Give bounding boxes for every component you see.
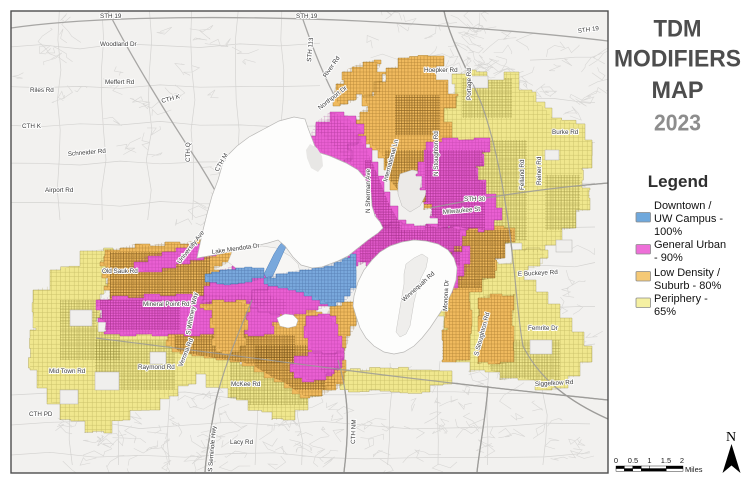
svg-text:CTH K: CTH K xyxy=(22,123,42,130)
svg-text:Lacy Rd: Lacy Rd xyxy=(230,439,254,446)
svg-text:CTH Q: CTH Q xyxy=(185,142,192,162)
svg-text:CTH NM: CTH NM xyxy=(350,419,358,444)
svg-text:1: 1 xyxy=(647,456,651,465)
svg-text:Airport Rd: Airport Rd xyxy=(45,187,74,194)
svg-text:McKee Rd: McKee Rd xyxy=(231,381,261,388)
svg-text:0.5: 0.5 xyxy=(628,456,638,465)
svg-text:Femrite Dr: Femrite Dr xyxy=(528,325,558,332)
svg-text:N Stoughton Rd: N Stoughton Rd xyxy=(433,131,440,176)
svg-text:Suburb - 80%: Suburb - 80% xyxy=(654,280,721,292)
svg-text:Old Sauk Rd: Old Sauk Rd xyxy=(102,268,138,275)
svg-text:1.5: 1.5 xyxy=(661,456,671,465)
svg-text:MAP: MAP xyxy=(652,77,704,104)
svg-text:Legend: Legend xyxy=(648,172,708,191)
svg-text:STH 30: STH 30 xyxy=(464,196,486,203)
svg-text:CTH PD: CTH PD xyxy=(29,411,53,418)
svg-text:Hoepker Rd: Hoepker Rd xyxy=(424,67,458,74)
svg-text:TDM: TDM xyxy=(654,16,702,43)
svg-text:Mid Town Rd: Mid Town Rd xyxy=(49,368,86,375)
svg-text:Miles: Miles xyxy=(685,465,703,474)
svg-text:Low Density /: Low Density / xyxy=(654,267,721,279)
svg-text:Woodland Dr: Woodland Dr xyxy=(100,41,137,48)
svg-text:STH 19: STH 19 xyxy=(296,13,318,20)
svg-text:100%: 100% xyxy=(654,226,682,238)
svg-text:2: 2 xyxy=(680,456,684,465)
svg-text:Riles Rd: Riles Rd xyxy=(30,87,54,94)
svg-text:0: 0 xyxy=(614,456,618,465)
svg-text:UW Campus -: UW Campus - xyxy=(654,213,723,225)
svg-text:STH 19: STH 19 xyxy=(100,13,122,20)
svg-text:Portage Rd: Portage Rd xyxy=(466,68,473,100)
svg-text:Meffert Rd: Meffert Rd xyxy=(105,79,135,86)
svg-text:N Sherman Ave: N Sherman Ave xyxy=(365,169,372,213)
svg-text:Raymond Rd: Raymond Rd xyxy=(138,364,175,371)
svg-text:- 90%: - 90% xyxy=(654,252,683,264)
svg-text:General Urban: General Urban xyxy=(654,239,726,251)
svg-text:Downtown /: Downtown / xyxy=(654,200,712,212)
svg-text:2023: 2023 xyxy=(654,110,701,136)
svg-text:65%: 65% xyxy=(654,306,676,318)
svg-text:Burke Rd: Burke Rd xyxy=(552,129,579,136)
svg-text:MODIFIERS: MODIFIERS xyxy=(614,46,741,73)
svg-text:Felland Rd: Felland Rd xyxy=(519,159,526,190)
svg-text:Reiner Rd: Reiner Rd xyxy=(536,156,543,185)
svg-text:Mineral Point Rd: Mineral Point Rd xyxy=(143,301,190,308)
svg-text:N: N xyxy=(726,430,736,445)
svg-text:Periphery -: Periphery - xyxy=(654,293,708,305)
